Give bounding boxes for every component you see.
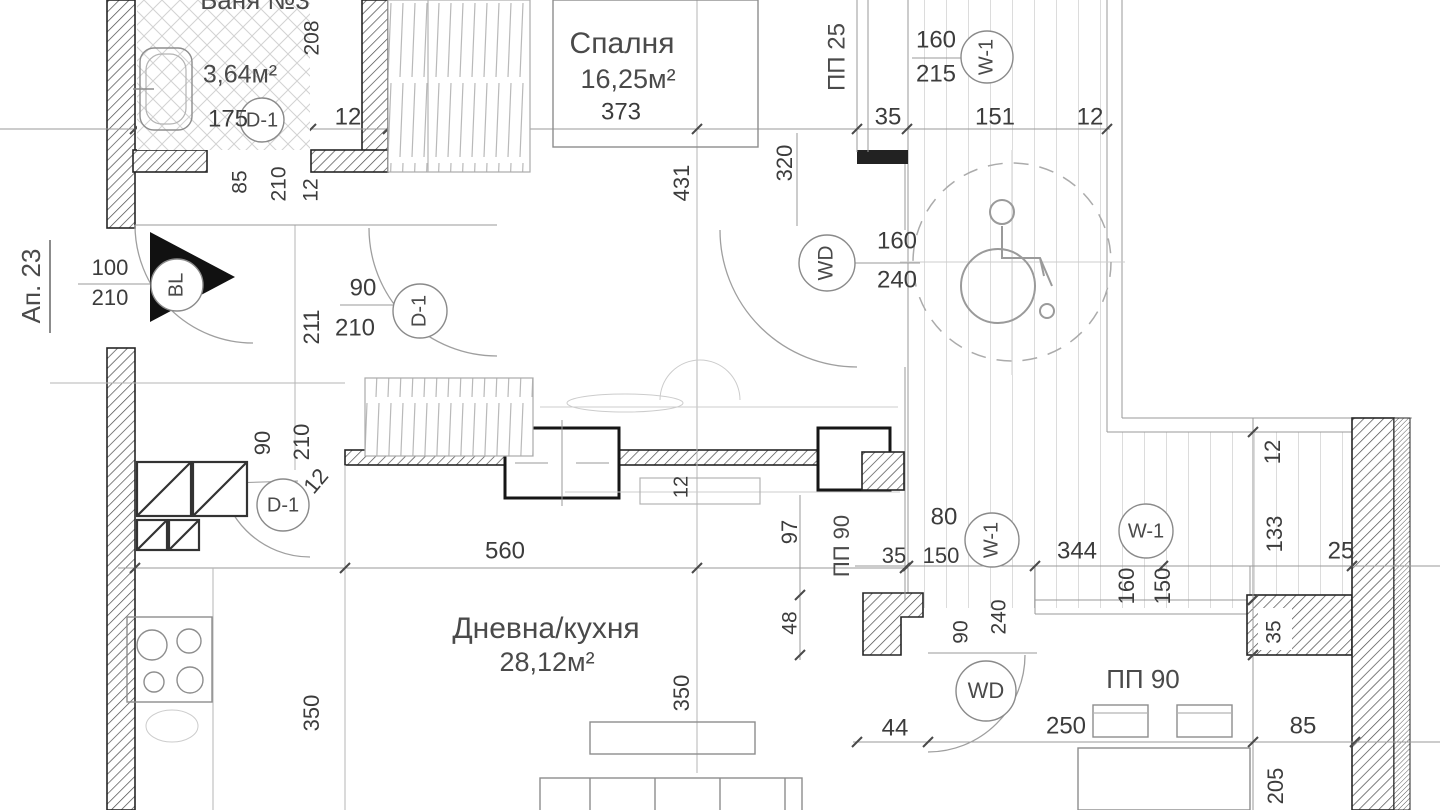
door-tag-wd-upper: WD [799,235,855,291]
dim-350-center: 350 [669,675,694,712]
window-tag-pp25: ПП 25 [823,23,850,91]
living-name: Дневна/кухня [452,612,639,645]
door-tag-d1-label: D-1 [246,109,278,131]
dim-85-bathdoor: 85 [229,170,252,193]
dim-151: 151 [975,103,1015,130]
door-tag-d1-label: D-1 [267,494,299,516]
dim-133: 133 [1262,516,1287,553]
wall-bathroom-bottom-right [311,150,388,172]
floor-plan-page: BL D-1 D-1 D-1 W-1 W-1 W-1 WD [0,0,1440,810]
door-tag-wd-label: WD [815,246,838,281]
sofa [540,778,802,810]
window-tag-w1-label: W-1 [975,39,997,75]
window-tag-pp90-bottom: ПП 90 [1106,664,1180,694]
dim-160-wd: 160 [877,227,917,254]
bathroom-title-partial: Баня №3 [200,0,310,15]
chair [1177,705,1232,737]
dim-210-entry: 210 [92,285,129,310]
door-tag-wd-lower: WD [956,661,1016,721]
dim-373: 373 [601,98,641,125]
wardrobe-top [388,0,530,172]
coffee-table [590,722,755,754]
dim-90-wd: 90 [950,620,973,643]
door-tag-d1-label: D-1 [408,295,430,327]
dim-35-mid: 35 [882,543,906,568]
dim-210-bathdoor: 210 [268,166,291,201]
apartment-marker: Ап. 23 [16,249,46,324]
dim-560: 560 [485,537,525,564]
dim-210-kitchen: 210 [289,424,314,461]
door-tag-bl-label: BL [165,273,187,297]
dim-160-top: 160 [916,26,956,53]
dim-12-bathdoor: 12 [300,178,323,201]
dim-160-window: 160 [1114,568,1139,605]
dim-35-top: 35 [875,103,902,130]
door-tag-d1-hall: D-1 [393,284,447,338]
dim-12-top: 12 [1077,103,1104,130]
dim-90-kitchen: 90 [250,431,275,455]
window-tag-w1-label: W-1 [1128,520,1164,542]
dim-211: 211 [299,309,324,344]
dim-240-wd: 240 [877,266,917,293]
dim-350-left: 350 [299,695,324,732]
dim-12-bath: 12 [335,103,362,130]
wardrobe-middle [365,378,533,456]
window-tag-w1-label: W-1 [980,522,1002,558]
window-tag-w1-right: W-1 [1119,504,1173,558]
bedroom-name: Спалня [570,27,675,60]
chair [1093,705,1148,737]
window-tag-w1-top: W-1 [961,31,1013,83]
dim-208: 208 [301,20,324,55]
dim-320: 320 [772,145,797,182]
living-area: 28,12м² [499,647,594,677]
bedroom-area: 16,25м² [580,64,675,94]
dim-44: 44 [882,714,909,741]
dim-344: 344 [1057,537,1097,564]
door-tag-wd-label: WD [968,678,1005,703]
dim-97: 97 [777,520,802,544]
vanity-counter [540,360,898,412]
dim-250: 250 [1046,712,1086,739]
wall-left-upper [107,0,135,228]
window-tag-pp90-side: ПП 90 [829,515,854,577]
door-tag-bl: BL [151,259,203,311]
dim-150-window: 150 [1150,568,1175,605]
dim-80: 80 [931,503,958,530]
wall-right-insulation [1394,418,1410,810]
dim-48: 48 [779,611,802,634]
kitchen-sink [146,710,198,742]
dim-210-hall: 210 [335,314,375,341]
wall-bathroom-bottom-left [133,150,207,172]
cooktop [127,617,212,742]
wall-left-lower [107,348,135,810]
window-sill-block [857,150,908,164]
dim-100-entry: 100 [92,255,129,280]
dim-35-right: 35 [1263,620,1286,643]
duct-shaft [137,462,247,550]
dim-85-bottom: 85 [1290,712,1317,739]
dim-12-console: 12 [670,476,692,498]
wall-block-bottom-right [863,593,923,655]
door-tag-d1-kitchen: D-1 [257,479,309,531]
window-tag-w1-middle: W-1 [965,513,1019,567]
dim-25: 25 [1328,537,1355,564]
dim-12-right: 12 [1260,440,1285,464]
dim-240-wd-lower: 240 [988,599,1011,634]
bathroom-area: 3,64м² [203,61,277,89]
dim-205: 205 [1263,768,1288,805]
dim-175: 175 [208,105,248,132]
dining-table [1078,748,1250,810]
dim-215: 215 [916,60,956,87]
wall-right-exterior [1352,418,1394,810]
dim-90-hall: 90 [350,274,377,301]
dining-set [1078,705,1250,810]
dim-150-mid: 150 [923,543,960,568]
pocket-door-right [818,428,904,490]
floor-plan-drawing: BL D-1 D-1 D-1 W-1 W-1 W-1 WD [0,0,1440,810]
dim-431: 431 [669,165,694,202]
